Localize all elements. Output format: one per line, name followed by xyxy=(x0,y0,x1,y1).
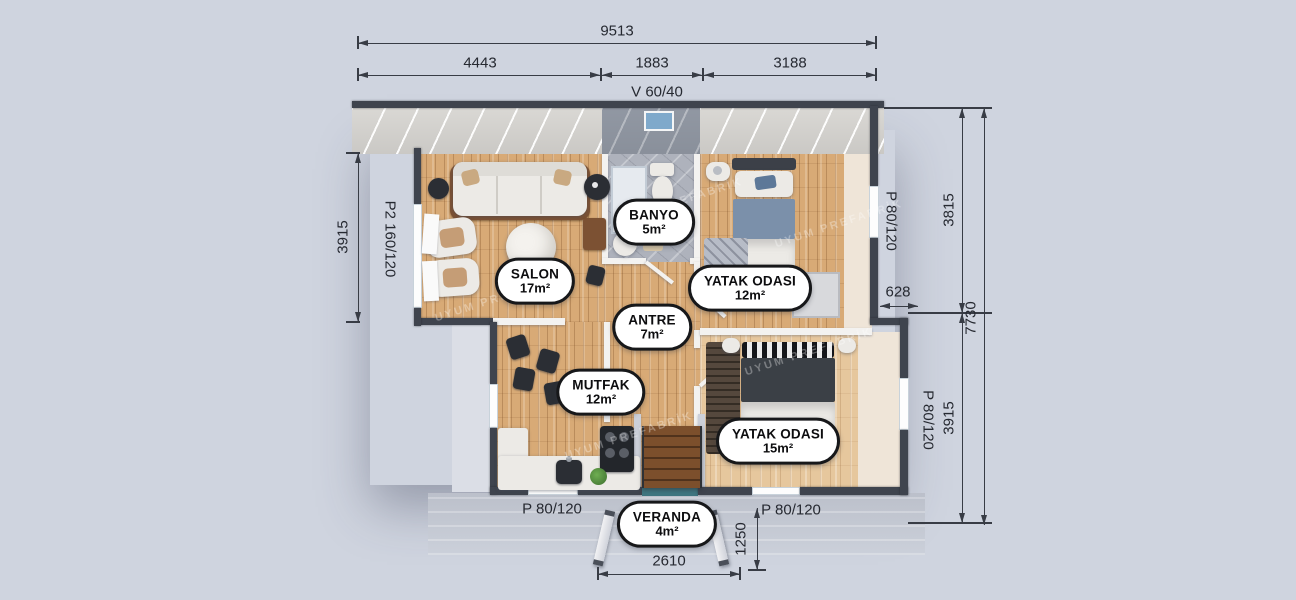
room-area: 12m² xyxy=(704,289,796,304)
dim-right-total: 7730 xyxy=(963,301,980,334)
nightstand-2b xyxy=(838,338,856,353)
sink-faucet xyxy=(566,456,572,462)
side-table-left xyxy=(428,178,449,199)
dim-arrow xyxy=(754,508,760,518)
room-name: SALON xyxy=(511,267,559,282)
dim-arrow xyxy=(959,513,965,523)
wall-banyo-bedroom1 xyxy=(694,154,700,262)
dim-veranda-width: 2610 xyxy=(652,553,685,570)
wall-right-bottom-b xyxy=(900,430,908,495)
room-name: YATAK ODASI xyxy=(704,274,796,289)
dim-top-seg2: 1883 xyxy=(635,55,668,72)
wall-left-a xyxy=(414,148,421,204)
window-label-salon: P2 160/120 xyxy=(382,201,399,278)
dim-arrow xyxy=(908,303,918,309)
dim-arrow xyxy=(692,72,702,78)
dim-arrow xyxy=(959,108,965,118)
room-label-banyo: BANYO 5m² xyxy=(613,199,695,246)
dim-arrow xyxy=(358,40,368,46)
dim-arrow xyxy=(981,108,987,118)
dim-top-seg1: 4443 xyxy=(463,55,496,72)
dim-arrow xyxy=(866,40,876,46)
dim-line-right-lower xyxy=(962,313,963,523)
nightstand-2a xyxy=(722,338,740,353)
wall-bottom-c xyxy=(698,487,752,495)
wall-right-top-b xyxy=(870,238,878,324)
floor-plan-canvas: UYUM PREFABRİK UYUM PREFABRİK UYUM PREFA… xyxy=(0,0,1296,600)
dim-arrow xyxy=(598,571,608,577)
bed1-headboard xyxy=(732,158,796,170)
dim-tick xyxy=(748,569,766,571)
wall-face-bedroom-2 xyxy=(858,332,900,490)
room-name: BANYO xyxy=(629,208,679,223)
bed1-blanket xyxy=(733,199,795,239)
dim-right-offset: 628 xyxy=(885,284,910,301)
dim-arrow xyxy=(704,72,714,78)
lamp-dot xyxy=(592,182,598,188)
sofa-pillow xyxy=(553,168,573,186)
nightstand-lamp xyxy=(713,166,722,175)
window-salon xyxy=(413,204,422,308)
window-kitchen-left xyxy=(489,384,498,428)
skylight-window xyxy=(644,111,674,131)
kitchen-chair xyxy=(512,366,536,391)
dim-left-height: 3915 xyxy=(335,220,352,253)
room-name: YATAK ODASI xyxy=(732,427,824,442)
dim-arrow xyxy=(358,72,368,78)
dim-arrow xyxy=(602,72,612,78)
vent-label: V 60/40 xyxy=(631,84,683,101)
dim-line-right-upper xyxy=(962,108,963,313)
wall-bedroom1-bedroom2 xyxy=(700,328,872,335)
room-name: MUTFAK xyxy=(572,378,629,393)
dim-arrow xyxy=(981,515,987,525)
window-bedroom2-south xyxy=(752,487,800,495)
room-label-bedroom-1: YATAK ODASI 12m² xyxy=(688,265,812,312)
wall-left-b xyxy=(414,308,421,326)
dim-arrow xyxy=(590,72,600,78)
curtain-panel xyxy=(422,261,439,302)
dim-right-lower: 3915 xyxy=(941,401,958,434)
wall-top xyxy=(352,101,884,108)
entry-stairs xyxy=(642,426,702,488)
wall-salon-mutfak xyxy=(493,318,565,325)
room-area: 4m² xyxy=(633,525,701,540)
dim-line-right-total xyxy=(984,108,985,525)
window-bedroom2-east xyxy=(899,378,909,430)
dim-arrow xyxy=(355,312,361,322)
sofa-cushion-seam xyxy=(540,176,542,214)
wall-bottom-d xyxy=(800,487,908,495)
dim-top-overall: 9513 xyxy=(600,23,633,40)
toilet-tank xyxy=(650,163,674,176)
dim-line-left xyxy=(358,153,359,322)
dim-ext-line xyxy=(908,522,992,524)
dim-line-top-overall xyxy=(358,43,876,44)
dim-line-top-segments xyxy=(358,75,876,76)
entry-threshold xyxy=(642,487,698,496)
room-label-bedroom-2: YATAK ODASI 15m² xyxy=(716,418,840,465)
bed2-blanket xyxy=(741,358,835,402)
stove-burner xyxy=(619,432,629,442)
sofa-cushion-seam xyxy=(496,176,498,214)
window-label-bedroom2-south: P 80/120 xyxy=(761,502,821,519)
wall-banyo-south-a xyxy=(602,258,646,264)
stove-burner xyxy=(619,448,629,458)
dim-line-veranda-width xyxy=(598,574,740,575)
window-label-bedroom2: P 80/120 xyxy=(920,390,937,450)
room-label-salon: SALON 17m² xyxy=(495,258,575,305)
armchair-2-cushion xyxy=(442,267,467,288)
dim-arrow xyxy=(355,153,361,163)
room-area: 12m² xyxy=(572,393,629,408)
dim-ext-line xyxy=(884,107,992,109)
room-area: 5m² xyxy=(629,223,679,238)
room-area: 15m² xyxy=(732,442,824,457)
dim-arrow xyxy=(866,72,876,78)
wall-kitchen-left-a xyxy=(490,322,497,384)
dim-right-upper: 3815 xyxy=(941,193,958,226)
bed2-headboard xyxy=(742,342,834,358)
wall-kitchen-left-b xyxy=(490,428,497,494)
stove-burner xyxy=(605,448,615,458)
kitchen-sink xyxy=(556,460,582,484)
plant xyxy=(590,468,607,485)
wall-salon-south-ext xyxy=(417,318,493,325)
room-label-veranda: VERANDA 4m² xyxy=(617,501,717,548)
curtain-panel xyxy=(422,214,440,255)
room-label-mutfak: MUTFAK 12m² xyxy=(556,369,645,416)
media-console xyxy=(583,218,606,250)
room-name: VERANDA xyxy=(633,510,701,525)
room-name: ANTRE xyxy=(628,313,676,328)
room-area: 17m² xyxy=(511,282,559,297)
dim-arrow xyxy=(730,571,740,577)
room-label-antre: ANTRE 7m² xyxy=(612,304,692,351)
window-label-bedroom1: P 80/120 xyxy=(883,191,900,251)
dim-arrow xyxy=(880,303,890,309)
wall-right-top-a xyxy=(870,106,878,186)
window-label-kitchen: P 80/120 xyxy=(522,501,582,518)
roof-eave-right xyxy=(700,106,884,154)
armchair-1-cushion xyxy=(439,226,465,248)
stove-burner xyxy=(605,432,615,442)
wall-face-bedroom-1 xyxy=(844,154,872,332)
wall-right-bottom-a xyxy=(900,318,908,378)
roof-eave-left xyxy=(352,106,602,154)
room-area: 7m² xyxy=(628,328,676,343)
window-bedroom1-east xyxy=(869,186,879,238)
dim-top-seg3: 3188 xyxy=(773,55,806,72)
dim-veranda-depth: 1250 xyxy=(733,522,750,555)
